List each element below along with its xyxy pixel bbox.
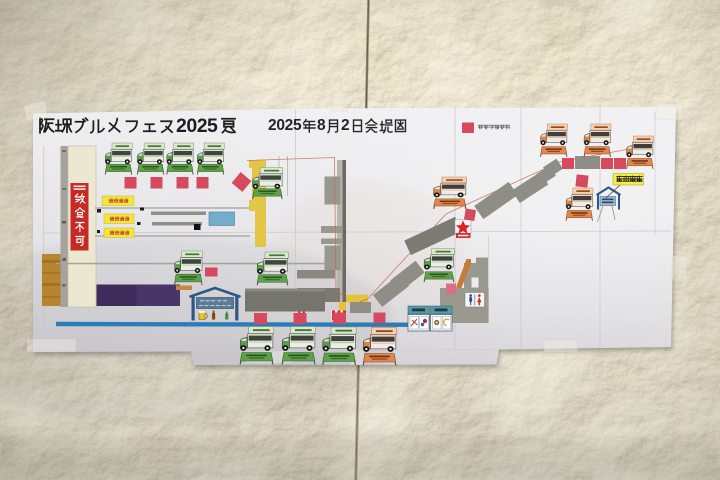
svg-text:2: 2 xyxy=(341,117,350,134)
svg-text:2025: 2025 xyxy=(176,115,218,137)
svg-text:8: 8 xyxy=(317,117,326,134)
svg-text:2025: 2025 xyxy=(268,117,302,134)
